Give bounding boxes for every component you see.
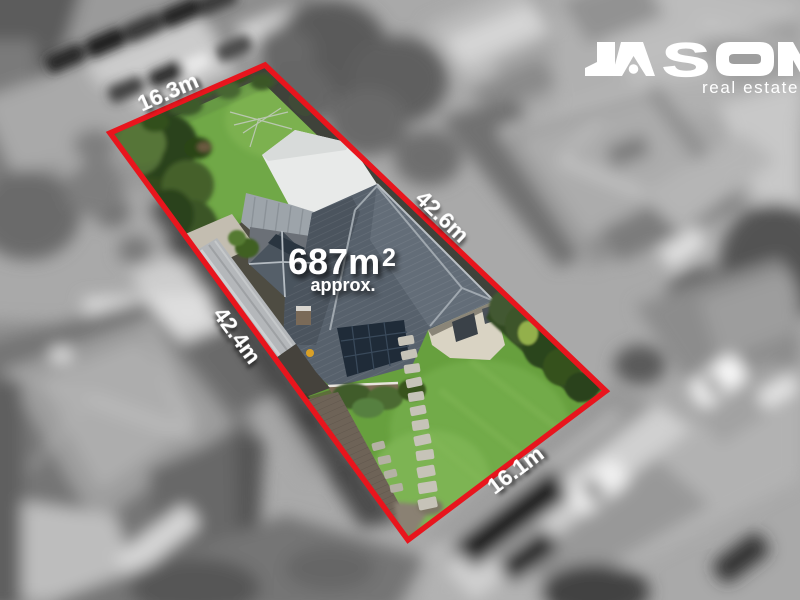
svg-text:approx.: approx. [310, 275, 375, 295]
svg-text:2: 2 [382, 244, 396, 272]
svg-text:real estate: real estate [702, 78, 799, 97]
